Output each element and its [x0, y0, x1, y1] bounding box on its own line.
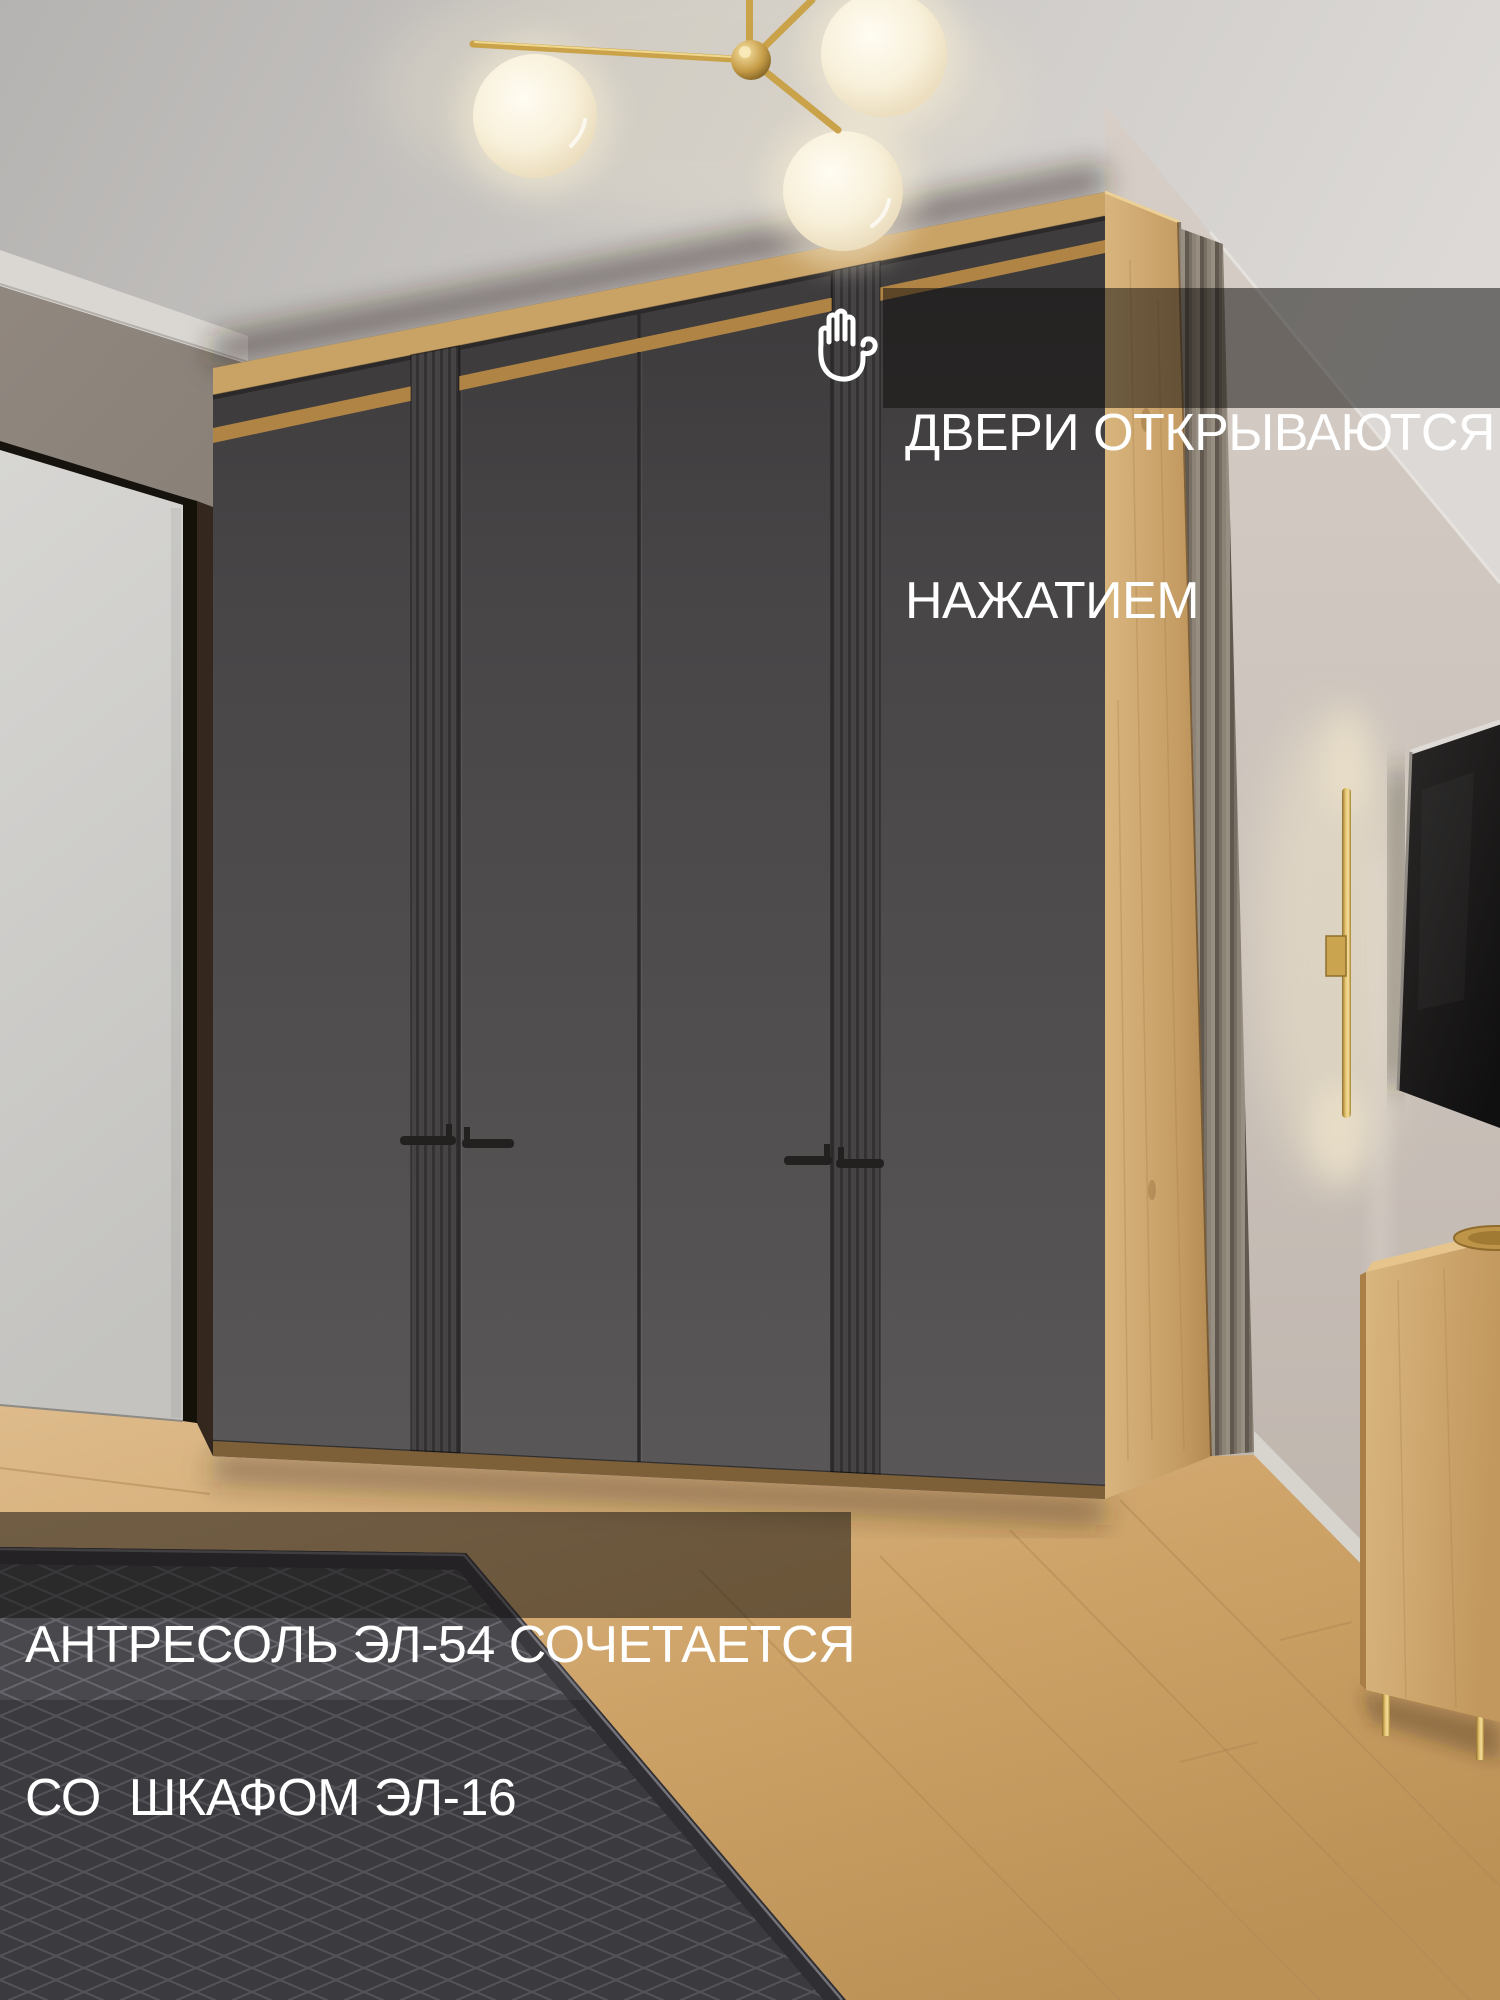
wood-knot	[1148, 1180, 1156, 1200]
handle-stem	[838, 1147, 844, 1163]
hand-press-icon	[810, 304, 878, 388]
white-door	[0, 441, 213, 1456]
lamp-globe-left	[473, 54, 597, 178]
banner-doors-open-line1: ДВЕРИ ОТКРЫВАЮТСЯ	[905, 405, 1500, 461]
lamp-stem	[746, 0, 753, 46]
light-bar-bracket	[1326, 936, 1346, 976]
interior-render: ДВЕРИ ОТКРЫВАЮТСЯ НАЖАТИЕМ АНТРЕСОЛЬ ЭЛ-…	[0, 0, 1500, 2000]
wardrobe-left-shadow	[197, 501, 213, 1456]
door-side-gap	[183, 497, 197, 1423]
fluted-strip-right	[832, 261, 880, 1475]
tv	[1392, 722, 1500, 1128]
hub-highlight	[739, 46, 751, 58]
banner-combo-line2: СО ШКАФОМ ЭЛ-16	[25, 1773, 851, 1824]
sideboard	[1360, 1226, 1500, 1762]
banner-combo-line1: АНТРЕСОЛЬ ЭЛ-54 СОЧЕТАЕТСЯ	[25, 1620, 851, 1671]
handle-stem	[824, 1144, 830, 1160]
cabinet-leg	[1476, 1712, 1484, 1760]
cabinet-front	[1366, 1240, 1500, 1722]
handle-stem	[464, 1127, 470, 1143]
cabinet-left-edge	[1360, 1272, 1366, 1690]
banner-combo: АНТРЕСОЛЬ ЭЛ-54 СОЧЕТАЕТСЯ СО ШКАФОМ ЭЛ-…	[0, 1512, 851, 1618]
banner-doors-open: ДВЕРИ ОТКРЫВАЮТСЯ НАЖАТИЕМ	[883, 288, 1500, 408]
handle-stem	[446, 1124, 452, 1140]
fluted-strip-left	[411, 346, 459, 1453]
lamp-hub	[731, 40, 771, 80]
lamp-globe-bottom	[783, 131, 903, 251]
banner-doors-open-line2: НАЖАТИЕМ	[905, 573, 1500, 629]
door-panel	[0, 450, 183, 1421]
wall-light-glow-bottom	[1310, 1085, 1370, 1185]
